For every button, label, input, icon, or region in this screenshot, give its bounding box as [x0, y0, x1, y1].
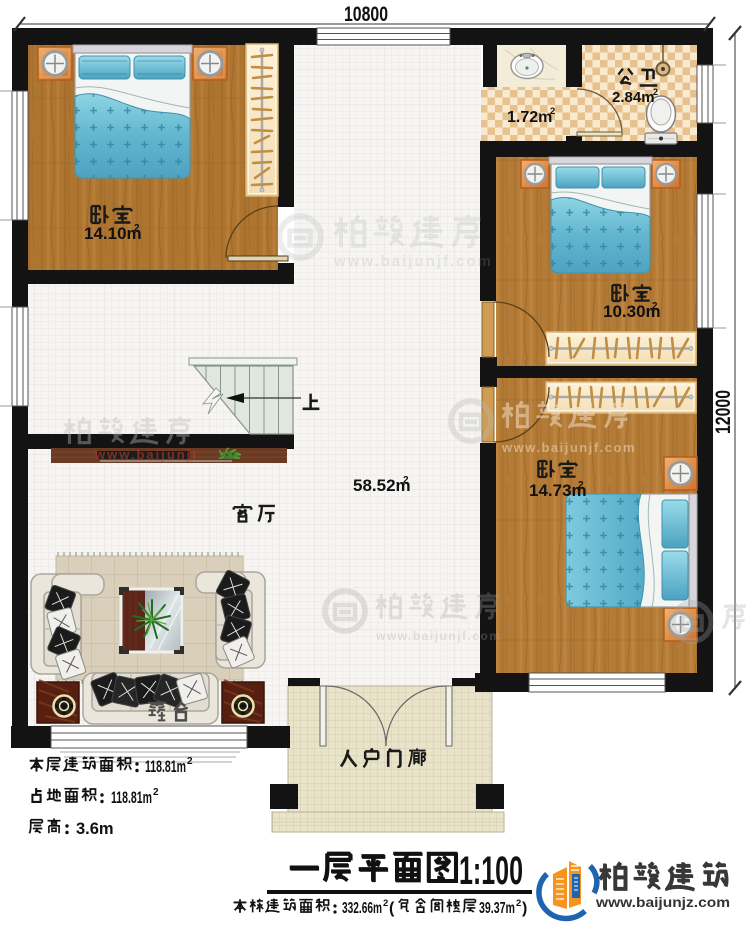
- svg-text:www.baijunjf.com: www.baijunjf.com: [333, 253, 493, 270]
- svg-text:2: 2: [153, 787, 159, 798]
- svg-text:2: 2: [403, 475, 409, 486]
- svg-text:2: 2: [550, 106, 555, 117]
- svg-text:www.baijunjf.com: www.baijunjf.com: [501, 440, 636, 455]
- svg-text:2: 2: [652, 301, 658, 312]
- svg-text:118.81m: 118.81m: [145, 758, 186, 776]
- svg-text:2: 2: [134, 223, 140, 234]
- svg-text:2: 2: [578, 480, 584, 491]
- svg-text:12000: 12000: [712, 390, 735, 434]
- svg-text:): ): [522, 900, 527, 917]
- svg-text:2: 2: [383, 898, 388, 909]
- svg-text:2: 2: [653, 87, 658, 97]
- svg-text:2: 2: [187, 756, 193, 767]
- svg-text:118.81m: 118.81m: [111, 789, 152, 807]
- svg-text:1.72m: 1.72m: [507, 109, 552, 126]
- svg-text:1:100: 1:100: [459, 849, 523, 893]
- svg-text:www.baijunji: www.baijunji: [94, 447, 198, 462]
- svg-text:2.84m: 2.84m: [612, 89, 655, 106]
- svg-text:10800: 10800: [344, 3, 388, 26]
- svg-text:39.37m: 39.37m: [479, 900, 515, 917]
- svg-text:3.6m: 3.6m: [76, 820, 114, 838]
- svg-text:2: 2: [516, 898, 521, 909]
- svg-text:(: (: [389, 900, 395, 917]
- svg-text:www.baijunjf.com: www.baijunjf.com: [375, 629, 502, 643]
- svg-text:www.baijunjz.com: www.baijunjz.com: [595, 894, 730, 910]
- svg-text:332.66m: 332.66m: [342, 900, 382, 917]
